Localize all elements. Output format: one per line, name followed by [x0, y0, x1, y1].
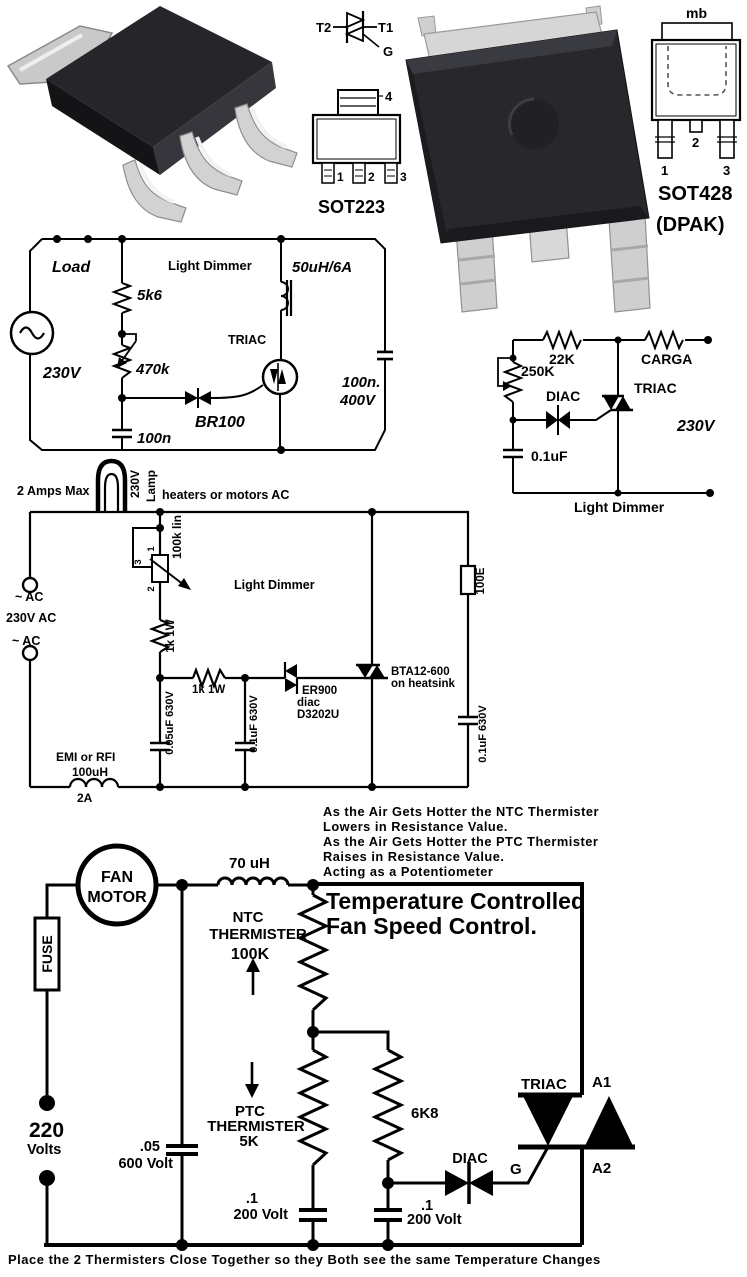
ntc-label-1: NTC — [233, 909, 264, 926]
amps-max-label: 2 Amps Max — [17, 484, 90, 498]
fan-diac-symbol — [445, 1170, 469, 1196]
inductor-70uh-label: 70 uH — [229, 855, 270, 872]
cap-01-mid-label: 0.1uF 630V — [248, 695, 260, 753]
fan-note-line-4: Raises in Resistance Value. — [323, 849, 504, 864]
fan-caption: Place the 2 Thermisters Close Together s… — [8, 1252, 601, 1267]
sot428-tab-label: mb — [686, 5, 707, 21]
sot223-name: SOT223 — [318, 197, 385, 217]
ntc-label-2: THERMISTER — [209, 926, 307, 943]
triac-symbol: T2 T1 G — [316, 11, 393, 59]
r-100e-label: 100E — [475, 567, 487, 594]
dimmer2-caption: Light Dimmer — [574, 499, 665, 515]
dimmer-circuit-1: Load Light Dimmer 5k6 470k 230V 100n BR1… — [11, 235, 393, 454]
ptc-thermistor — [300, 1050, 326, 1165]
triac-g-label: G — [383, 44, 393, 59]
sot223-pin-3 — [385, 163, 397, 183]
fan-speed-circuit: As the Air Gets Hotter the NTC Thermiste… — [8, 804, 635, 1267]
supply-volts-label: Volts — [27, 1142, 61, 1158]
sot428-pin-1 — [658, 120, 672, 158]
dpak-photo-lead-3 — [609, 215, 650, 312]
cap-1-200v-left — [299, 1210, 327, 1220]
sot428-pin-3 — [720, 120, 734, 158]
pot-pin2-label: 2 — [146, 586, 157, 591]
fan-motor-label-1: FAN — [101, 869, 133, 886]
cap-100n-label: 100n — [137, 430, 171, 447]
dimmer-circuit-3: 2 Amps Max 230V Lamp heaters or motors A… — [6, 461, 489, 805]
bta12-label-1: BTA12-600 — [391, 666, 450, 678]
cap-100n-bottom — [112, 430, 132, 437]
sot428-pin3-label: 3 — [723, 163, 730, 178]
source-230v-label: 230V — [42, 365, 82, 382]
r-1k1w-mid-label: 1k 1W — [192, 684, 225, 696]
supply-terminal-top — [39, 1095, 55, 1111]
cap2-value-label: .1 — [246, 1191, 258, 1207]
ptc-value-label: 5K — [239, 1133, 258, 1150]
diac2-label: DIAC — [546, 388, 580, 404]
sot428-pin-2 — [690, 120, 702, 132]
cap2-volt-label: 200 Volt — [233, 1207, 288, 1223]
pot-470k-label: 470k — [135, 361, 170, 378]
heaters-label: heaters or motors AC — [162, 488, 289, 502]
fan-triac-label: TRIAC — [521, 1076, 567, 1093]
pot-pin3-label: 3 — [133, 559, 144, 564]
emi-label-1: EMI or RFI — [56, 750, 115, 764]
fuse-label: FUSE — [39, 935, 55, 972]
resistor-22k — [543, 332, 581, 348]
ptc-down-arrow — [245, 1084, 259, 1098]
sot428-pin1-label: 1 — [661, 163, 668, 178]
voltage2-label: 230V — [676, 418, 716, 435]
fan-diac-label: DIAC — [452, 1151, 488, 1167]
emi-label-2: 100uH — [72, 765, 108, 779]
sot223-photo — [8, 6, 297, 222]
cap-right-label-1: 100n. — [342, 374, 380, 391]
triac-label: TRIAC — [228, 333, 266, 347]
inductor-70uh — [218, 878, 288, 885]
supply-voltage-label: 220 — [29, 1119, 64, 1142]
cap-01-right-label: 0.1uF 630V — [477, 705, 489, 763]
sot223-pin4-label: 4 — [385, 89, 393, 104]
fan-title-line-1: Temperature Controlled — [326, 888, 585, 914]
emi-label-3: 2A — [77, 791, 93, 805]
fan-title-line-2: Fan Speed Control. — [326, 913, 537, 939]
load-label: Load — [52, 259, 91, 276]
ac-bottom-label: ~ AC — [12, 634, 40, 648]
lamp-label-1: 230V — [128, 470, 142, 498]
sot223-pin-2 — [353, 163, 365, 183]
schematic-collage: T2 T1 G 4 1 2 3 SOT223 — [0, 0, 747, 1277]
fan-note-line-2: Lowers in Resistance Value. — [323, 819, 508, 834]
fan-note-line-5: Acting as a Potentiometer — [323, 864, 493, 879]
dpak-photo — [406, 6, 650, 312]
dimmer1-title: Light Dimmer — [168, 258, 252, 273]
er900-label-3: D3202U — [297, 709, 339, 721]
pot-250k-label: 250K — [521, 363, 554, 379]
fan-note-line-1: As the Air Gets Hotter the NTC Thermiste… — [323, 804, 599, 819]
pot-pin1-label: 1 — [146, 546, 157, 552]
resistor-carga — [645, 332, 683, 348]
ntc-thermistor — [300, 895, 326, 1010]
cap-01uf-630v-right — [458, 717, 478, 724]
inductor-label: 50uH/6A — [292, 259, 352, 276]
sot428-pinout: mb 2 1 3 SOT428 (DPAK) — [652, 5, 740, 236]
diac-er900-symbol — [285, 664, 297, 678]
cap-right-label-2: 400V — [339, 392, 377, 409]
sot428-tab — [662, 23, 732, 40]
r-5k6-label: 5k6 — [137, 287, 163, 304]
pot-250k — [505, 362, 521, 402]
er900-label-1: ER900 — [302, 685, 337, 697]
dimmer-circuit-2: 22K CARGA 250K DIAC TRIAC 230V 0.1uF Lig… — [498, 332, 716, 515]
sot428-pin2-label: 2 — [692, 135, 699, 150]
sot223-tab-pin — [338, 90, 378, 115]
fan-motor-label-2: MOTOR — [87, 889, 147, 906]
sot223-pin-1 — [322, 163, 334, 183]
fan-triac-symbol — [523, 1096, 573, 1146]
cap1-volt-label: 600 Volt — [118, 1156, 173, 1172]
lamp-symbol — [98, 461, 125, 512]
ntc-value-label: 100K — [231, 946, 270, 963]
cap-05-600v — [166, 1146, 198, 1154]
r-1k1w-top-label: 1k 1W — [165, 619, 177, 652]
emi-inductor — [70, 779, 118, 787]
triac-symbol-triangle-up — [347, 13, 363, 27]
ac-voltage-label: 230V AC — [6, 611, 56, 625]
cap3-volt-label: 200 Volt — [407, 1212, 462, 1228]
pot-100k-body — [152, 555, 168, 582]
triac-symbol-triangle-down — [347, 27, 363, 41]
schematic-collage-page: T2 T1 G 4 1 2 3 SOT223 — [0, 0, 747, 1277]
resistor-5k6 — [114, 283, 130, 313]
triac2-label: TRIAC — [634, 380, 677, 396]
triac-t1-label: T1 — [378, 20, 393, 35]
supply-terminal-bottom — [39, 1170, 55, 1186]
ac-top-label: ~ AC — [15, 590, 43, 604]
ac-terminal-bottom — [23, 646, 37, 660]
resistor-100e — [461, 566, 475, 594]
diac2-symbol — [546, 411, 558, 429]
sot223-pin3-label: 3 — [400, 170, 407, 184]
resistor-6k8 — [375, 1050, 401, 1160]
lamp-label-2: Lamp — [144, 470, 158, 502]
cap-1-200v-right — [374, 1210, 402, 1220]
sot223-pin1-label: 1 — [337, 170, 344, 184]
a1-label: A1 — [592, 1074, 611, 1091]
cap1-value-label: .05 — [140, 1139, 160, 1155]
fan-note-line-3: As the Air Gets Hotter the PTC Thermiste… — [323, 834, 598, 849]
a2-label: A2 — [592, 1160, 611, 1177]
r-6k8-label: 6K8 — [411, 1105, 439, 1122]
diac-br100-symbol — [185, 391, 198, 405]
sot223-pin2-label: 2 — [368, 170, 375, 184]
diac-br100-label: BR100 — [195, 414, 245, 431]
sot223-pinout: 4 1 2 3 SOT223 — [313, 89, 407, 217]
pot-100k-wiper-arrow — [178, 578, 191, 590]
cap2-label: 0.1uF — [531, 448, 568, 464]
dimmer3-title: Light Dimmer — [234, 578, 315, 592]
gate-label: G — [510, 1161, 522, 1178]
pot-100k-label: 100k lin — [170, 515, 184, 559]
cap-005-label: 0.05uF 630V — [164, 691, 176, 755]
triac-t2-label: T2 — [316, 20, 331, 35]
bta12-label-2: on heatsink — [391, 678, 456, 690]
sot428-name: SOT428 — [658, 183, 732, 205]
cap-01uf — [503, 450, 523, 457]
carga-label: CARGA — [641, 351, 692, 367]
sot428-variant: (DPAK) — [656, 214, 725, 236]
er900-label-2: diac — [297, 697, 321, 709]
